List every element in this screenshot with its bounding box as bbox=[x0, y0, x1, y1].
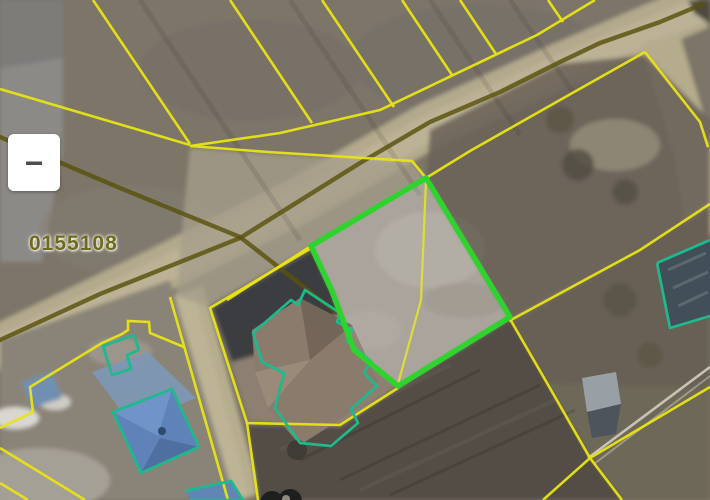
cadastral-quarter-label: 0155108 bbox=[29, 232, 118, 256]
zoom-out-button[interactable]: − bbox=[8, 134, 60, 191]
map-viewport[interactable]: − 0155108 bbox=[0, 0, 710, 500]
